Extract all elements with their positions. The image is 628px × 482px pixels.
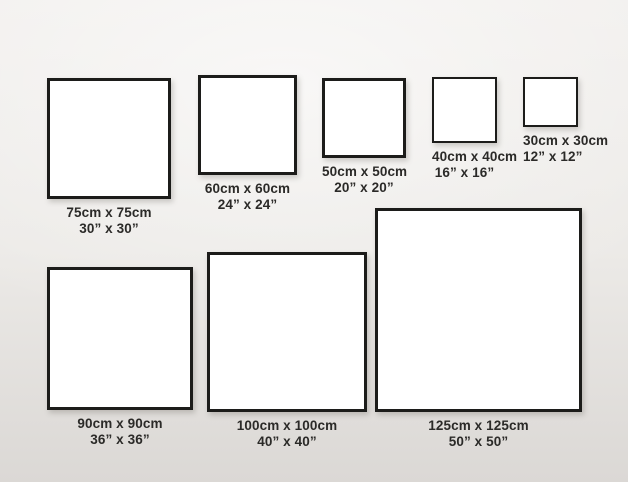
size-inches-text: 36” x 36” <box>47 432 193 448</box>
size-cm-text: 90cm x 90cm <box>47 416 193 432</box>
size-label-40cm: 40cm x 40cm 16” x 16” <box>432 149 497 181</box>
frame-item-90cm: 90cm x 90cm 36” x 36” <box>47 267 193 448</box>
size-inches-text: 12” x 12” <box>523 149 578 165</box>
size-cm-text: 30cm x 30cm <box>523 133 578 149</box>
frame-50cm <box>322 78 406 158</box>
size-label-75cm: 75cm x 75cm 30” x 30” <box>47 205 171 237</box>
size-inches-text: 16” x 16” <box>432 165 497 181</box>
frame-item-60cm: 60cm x 60cm 24” x 24” <box>198 75 297 213</box>
frame-item-75cm: 75cm x 75cm 30” x 30” <box>47 78 171 237</box>
frame-100cm <box>207 252 367 412</box>
size-cm-text: 50cm x 50cm <box>322 164 406 180</box>
frame-30cm <box>523 77 578 127</box>
size-inches-text: 20” x 20” <box>322 180 406 196</box>
size-label-125cm: 125cm x 125cm 50” x 50” <box>375 418 582 450</box>
size-cm-text: 100cm x 100cm <box>207 418 367 434</box>
size-cm-text: 125cm x 125cm <box>375 418 582 434</box>
size-label-90cm: 90cm x 90cm 36” x 36” <box>47 416 193 448</box>
size-inches-text: 40” x 40” <box>207 434 367 450</box>
size-cm-text: 60cm x 60cm <box>198 181 297 197</box>
size-label-30cm: 30cm x 30cm 12” x 12” <box>523 133 578 165</box>
frame-item-100cm: 100cm x 100cm 40” x 40” <box>207 252 367 450</box>
size-comparison-chart: 75cm x 75cm 30” x 30” 60cm x 60cm 24” x … <box>0 0 628 482</box>
frame-item-40cm: 40cm x 40cm 16” x 16” <box>432 77 497 181</box>
frame-90cm <box>47 267 193 410</box>
frame-item-125cm: 125cm x 125cm 50” x 50” <box>375 208 582 450</box>
size-inches-text: 24” x 24” <box>198 197 297 213</box>
size-label-50cm: 50cm x 50cm 20” x 20” <box>322 164 406 196</box>
frame-40cm <box>432 77 497 143</box>
size-label-60cm: 60cm x 60cm 24” x 24” <box>198 181 297 213</box>
size-inches-text: 30” x 30” <box>47 221 171 237</box>
size-label-100cm: 100cm x 100cm 40” x 40” <box>207 418 367 450</box>
frame-125cm <box>375 208 582 412</box>
frame-75cm <box>47 78 171 199</box>
frame-item-50cm: 50cm x 50cm 20” x 20” <box>322 78 406 196</box>
size-inches-text: 50” x 50” <box>375 434 582 450</box>
size-cm-text: 75cm x 75cm <box>47 205 171 221</box>
frame-item-30cm: 30cm x 30cm 12” x 12” <box>523 77 578 165</box>
frame-60cm <box>198 75 297 175</box>
size-cm-text: 40cm x 40cm <box>432 149 497 165</box>
